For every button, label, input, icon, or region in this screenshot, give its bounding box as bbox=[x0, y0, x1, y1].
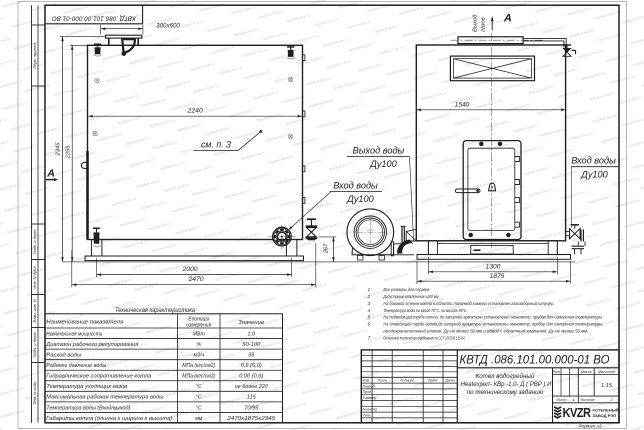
svg-text:см. п. 3: см. п. 3 bbox=[201, 140, 231, 150]
svg-text:1875: 1875 bbox=[490, 273, 505, 280]
svg-text:Утв.: Утв. bbox=[363, 413, 371, 417]
svg-text:Диапазон рабочего регулировани: Диапазон рабочего регулирования bbox=[45, 342, 138, 348]
svg-text:МПа (кгс/см2): МПа (кгс/см2) bbox=[182, 363, 215, 369]
svg-text:ЗАВОД РЭП: ЗАВОД РЭП bbox=[593, 413, 617, 418]
svg-text:2: 2 bbox=[366, 294, 370, 300]
svg-text:Изм.: Изм. bbox=[363, 379, 370, 383]
svg-text:Лит.: Лит. bbox=[551, 370, 560, 374]
svg-text:0,06 (0,6): 0,06 (0,6) bbox=[239, 374, 263, 380]
svg-text:Лист: Лист bbox=[376, 379, 386, 383]
svg-text:Остальные технические требован: Остальные технические требования по ОСТ … bbox=[383, 335, 465, 341]
svg-text:115: 115 bbox=[247, 395, 257, 401]
svg-text:1: 1 bbox=[367, 287, 370, 293]
svg-text:2240: 2240 bbox=[187, 108, 203, 115]
svg-text:КВЗР: КВЗР bbox=[367, 228, 375, 232]
svg-text:Листов: Листов bbox=[580, 398, 595, 402]
svg-text:Расход воды: Расход воды bbox=[46, 353, 82, 359]
svg-text:Дата: Дата bbox=[444, 379, 454, 383]
svg-text:Подп.: Подп. bbox=[428, 379, 437, 383]
svg-text:Ду100: Ду100 bbox=[369, 159, 397, 169]
svg-text:Допустимые отклонения ±100 мм.: Допустимые отклонения ±100 мм. bbox=[383, 294, 440, 300]
svg-text:А: А bbox=[46, 168, 55, 180]
svg-text:КВТД .086.101.00.000-01 ВО: КВТД .086.101.00.000-01 ВО bbox=[460, 355, 610, 367]
svg-text:Температура уходящих газов: Температура уходящих газов bbox=[46, 384, 127, 390]
svg-text:1540: 1540 bbox=[455, 101, 470, 108]
svg-text:Лист: Лист bbox=[556, 398, 567, 402]
svg-text:На отводящей трубе котла,до за: На отводящей трубе котла,до запорной арм… bbox=[383, 321, 603, 328]
svg-text:Выход: Выход bbox=[473, 14, 479, 32]
svg-text:Номинальная мощность: Номинальная мощность bbox=[46, 331, 102, 337]
svg-text:Формат А3: Формат А3 bbox=[579, 424, 603, 429]
svg-text:Подп. и дата: Подп. и дата bbox=[32, 229, 37, 255]
svg-text:мм: мм bbox=[195, 416, 203, 422]
svg-text:Масса: Масса bbox=[581, 370, 592, 374]
svg-text:м3/ч: м3/ч bbox=[193, 353, 204, 359]
svg-text:Вход воды: Вход воды bbox=[333, 180, 378, 190]
svg-text:Выход воды: Выход воды bbox=[353, 145, 405, 155]
svg-text:Взам. инв. N: Взам. инв. N bbox=[32, 299, 37, 322]
svg-text:предохранительный клапан. Ду н: предохранительный клапан. Ду не менее 50… bbox=[383, 328, 588, 335]
svg-text:Наименование показателя: Наименование показателя bbox=[46, 320, 123, 326]
svg-text:1,0: 1,0 bbox=[247, 331, 256, 337]
svg-text:°С: °С bbox=[196, 405, 202, 411]
svg-text:Н.контр.: Н.контр. bbox=[363, 408, 379, 412]
svg-text:2000: 2000 bbox=[181, 266, 197, 273]
svg-text:2470х1875х2345: 2470х1875х2345 bbox=[226, 416, 276, 422]
svg-text:Вход воды: Вход воды bbox=[571, 155, 616, 165]
svg-text:N докум.: N докум. bbox=[400, 379, 414, 383]
svg-text:КВТД .086.101.00.000-01 ВО: КВТД .086.101.00.000-01 ВО bbox=[52, 15, 136, 22]
svg-text:Ду100: Ду100 bbox=[346, 194, 374, 204]
svg-text:Котел водогрейный: Котел водогрейный bbox=[476, 373, 535, 380]
svg-text:50-100: 50-100 bbox=[242, 342, 261, 348]
svg-text:МПа (кгс/см2): МПа (кгс/см2) bbox=[182, 374, 215, 380]
svg-text:4: 4 bbox=[367, 308, 370, 314]
svg-text:%: % bbox=[196, 342, 201, 348]
svg-text:2470: 2470 bbox=[187, 276, 203, 283]
svg-text:2255: 2255 bbox=[66, 145, 72, 160]
svg-text:3: 3 bbox=[367, 301, 370, 307]
svg-text:А: А bbox=[503, 13, 512, 25]
svg-text:по техническому заданию: по техническому заданию bbox=[467, 389, 544, 396]
svg-text:0,6 (6,0): 0,6 (6,0) bbox=[241, 363, 262, 369]
svg-text:1: 1 bbox=[572, 398, 574, 402]
svg-text:7: 7 bbox=[367, 335, 370, 341]
svg-text:Heatexpert- КВр -1,0- Д ( РВР: Heatexpert- КВр -1,0- Д ( РВР ) И bbox=[461, 382, 552, 388]
svg-text:300х600: 300х600 bbox=[156, 22, 180, 29]
svg-text:Подп. и дата: Подп. и дата bbox=[32, 332, 37, 358]
svg-text:Разраб.: Разраб. bbox=[363, 384, 376, 388]
svg-text:2345: 2345 bbox=[56, 142, 62, 157]
svg-text:Максимальная рабочая температу: Максимальная рабочая температура воды bbox=[46, 395, 164, 401]
svg-text:1300: 1300 bbox=[486, 263, 501, 270]
svg-text:газов: газов bbox=[481, 17, 487, 32]
svg-text:Ду100: Ду100 bbox=[580, 169, 608, 179]
svg-text:Перв. примен.: Перв. примен. bbox=[32, 42, 37, 69]
svg-text:Габариты котла (длинна х ширин: Габариты котла (длинна х ширина х высота… bbox=[46, 416, 172, 422]
svg-text:Гидравлическое сопротивление к: Гидравлическое сопротивление котла bbox=[46, 374, 152, 380]
svg-text:Пров.: Пров. bbox=[363, 390, 373, 394]
svg-text:°С: °С bbox=[196, 395, 202, 401]
svg-text:Значение: Значение bbox=[238, 320, 264, 326]
svg-text:Т.контр.: Т.контр. bbox=[363, 396, 378, 400]
svg-text:KVZR: KVZR bbox=[563, 405, 592, 420]
svg-text:На боковой стенке котла в обла: На боковой стенке котла в области топочн… bbox=[383, 300, 554, 307]
svg-text:Рабочее давление воды: Рабочее давление воды bbox=[46, 363, 107, 369]
svg-text:Температура воды на входе 70°: Температура воды на входе 70°С, на выход… bbox=[383, 308, 467, 314]
svg-text:35: 35 bbox=[248, 353, 255, 359]
svg-text:°С: °С bbox=[196, 384, 202, 390]
svg-text:На подводящей трубе котла, до: На подводящей трубе котла, до запорной а… bbox=[383, 314, 603, 321]
svg-text:70/95: 70/95 bbox=[244, 405, 259, 411]
svg-text:Все размеры для справок: Все размеры для справок bbox=[383, 287, 430, 293]
svg-text:Масштаб: Масштаб bbox=[598, 370, 616, 374]
svg-text:МВт: МВт bbox=[193, 331, 206, 337]
svg-text:5: 5 bbox=[367, 315, 370, 321]
svg-text:Инв. N дубл.: Инв. N дубл. bbox=[32, 265, 37, 288]
svg-text:1:15: 1:15 bbox=[601, 383, 613, 389]
svg-text:измерения: измерения bbox=[186, 322, 211, 328]
svg-text:6: 6 bbox=[367, 322, 370, 328]
svg-text:267: 267 bbox=[324, 243, 330, 254]
svg-text:Температура воды (Вход/выход): Температура воды (Вход/выход) bbox=[46, 405, 130, 411]
svg-text:Инв. N подл.: Инв. N подл. bbox=[32, 381, 37, 404]
svg-text:не более 220: не более 220 bbox=[235, 384, 269, 390]
